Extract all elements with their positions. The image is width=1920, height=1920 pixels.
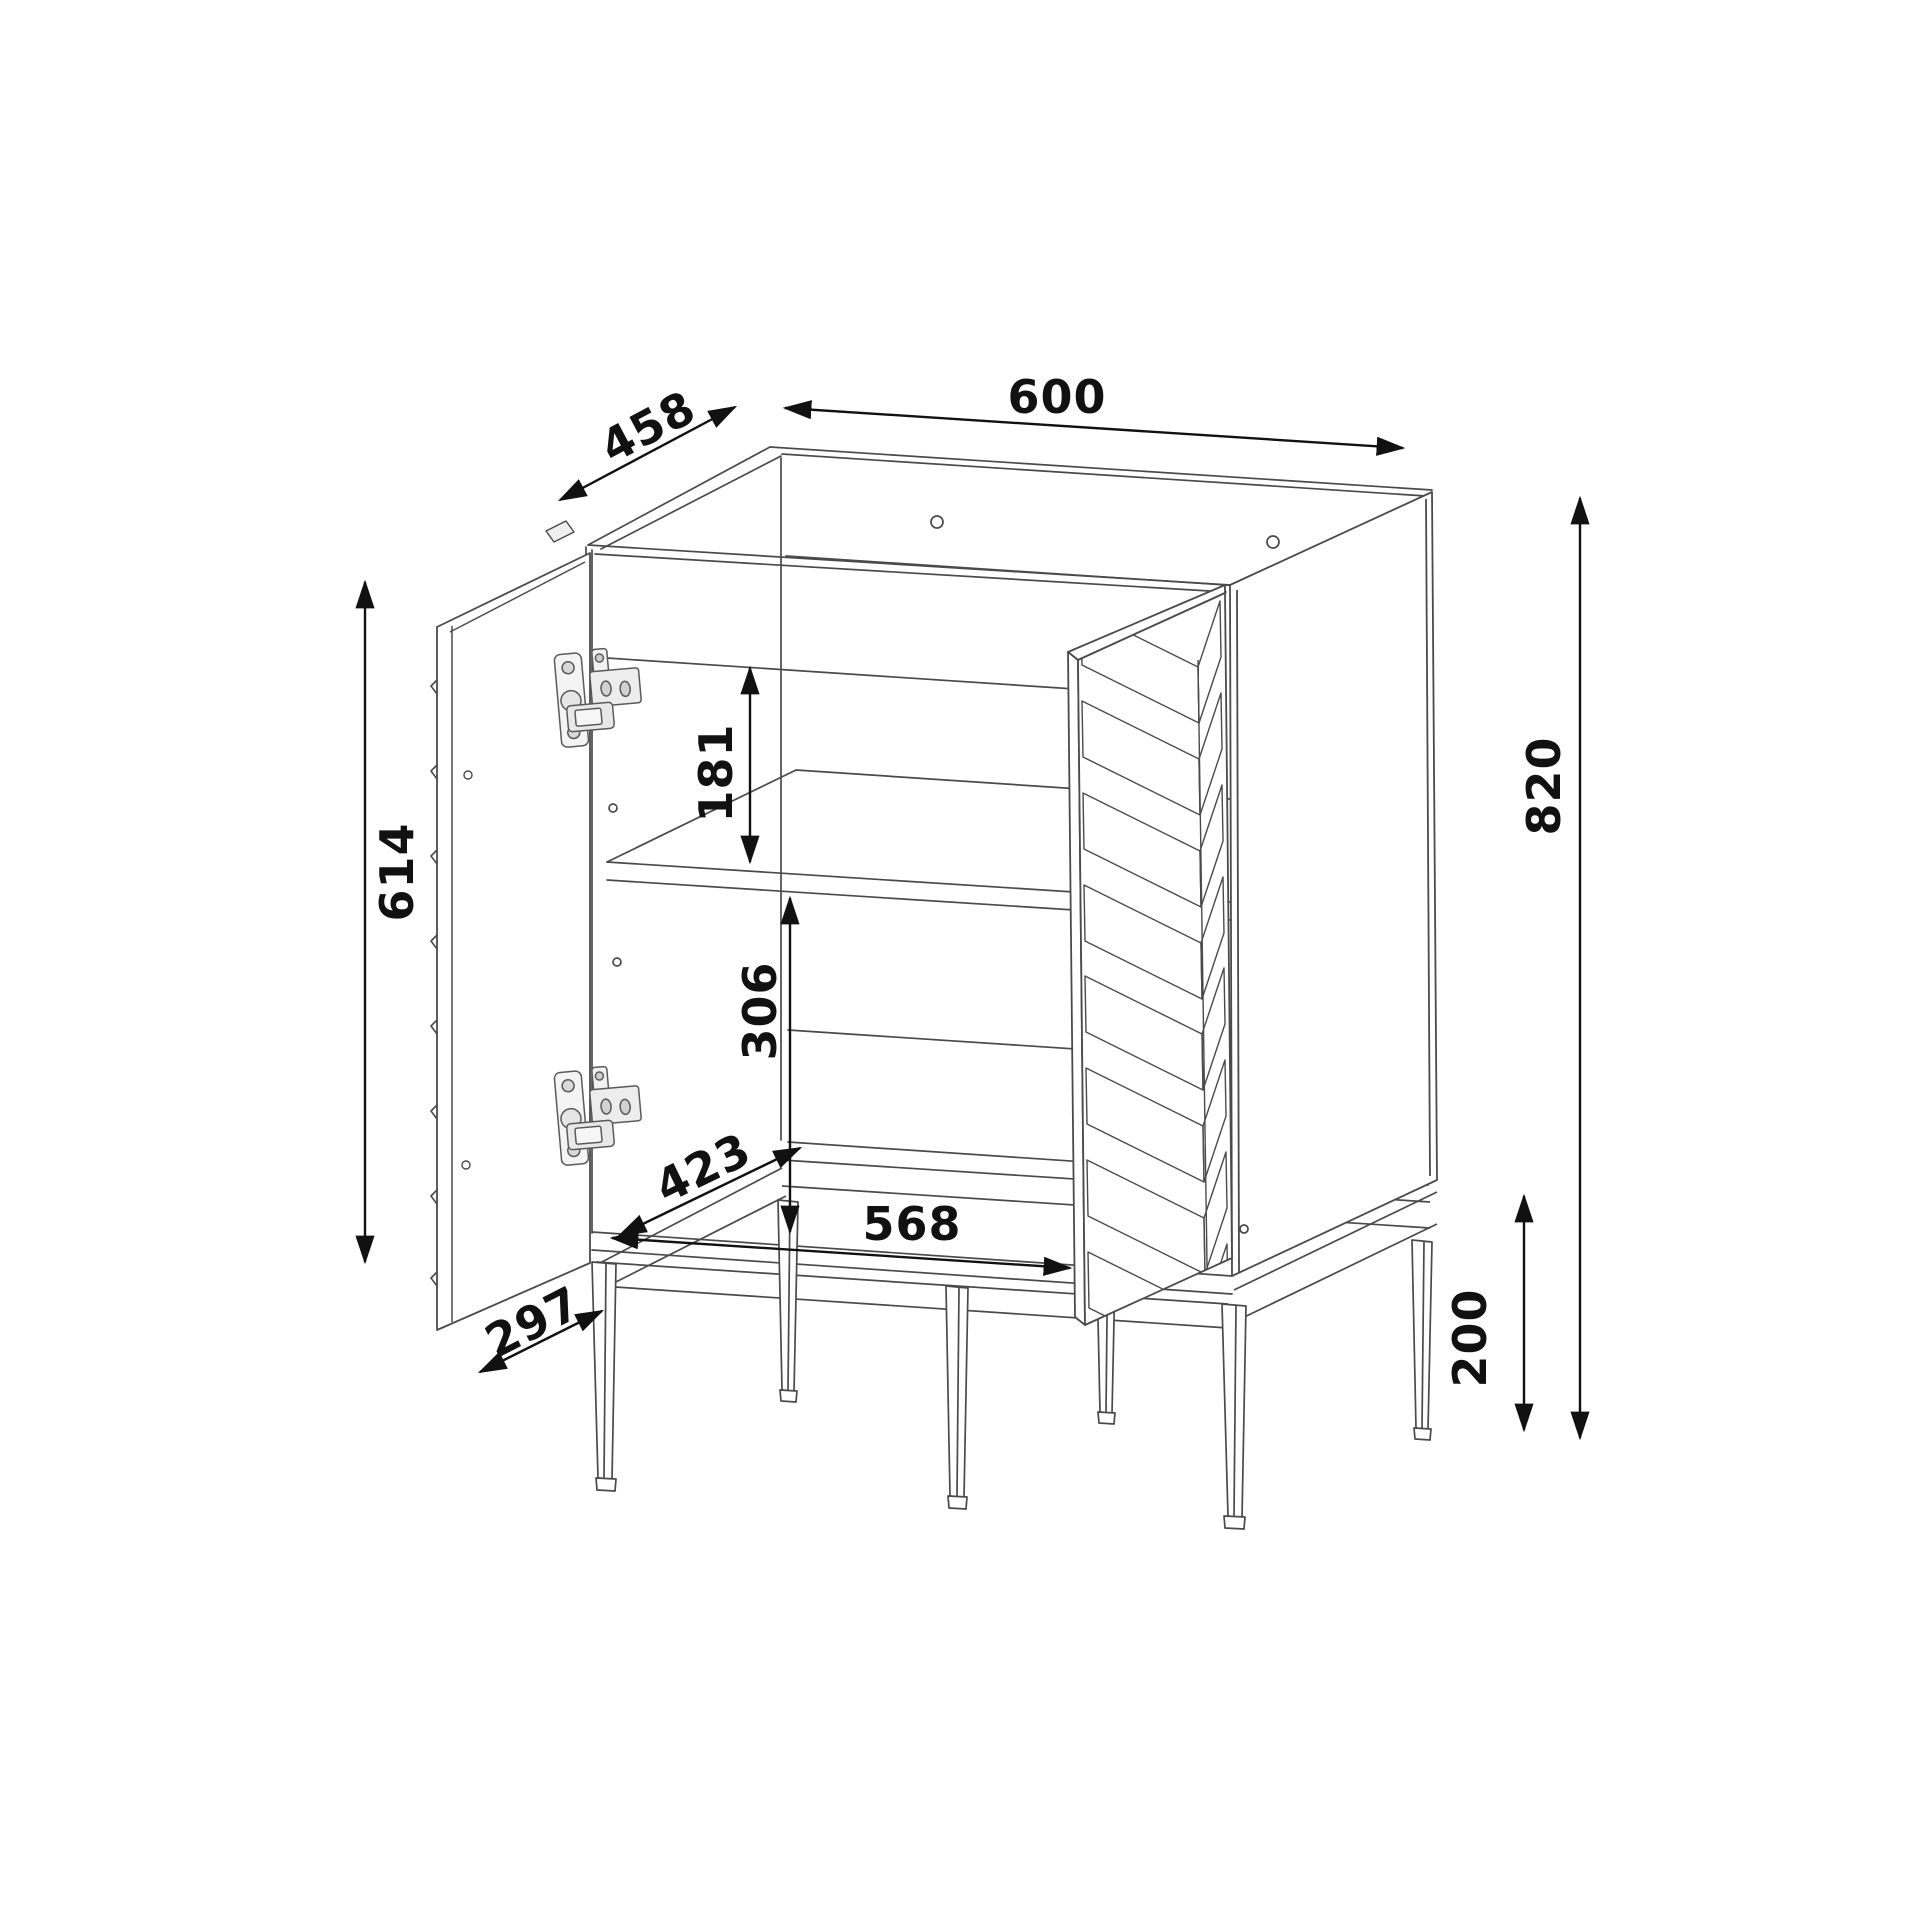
right-side-panel xyxy=(1230,492,1437,1276)
technical-drawing-page: 600 458 820 200 614 181 306 423 568 297 xyxy=(0,0,1920,1920)
hinge-slot xyxy=(600,681,611,697)
dim-leg-height-label: 200 xyxy=(1443,1288,1497,1387)
hinge-slot xyxy=(600,1099,611,1115)
hinge-slot xyxy=(620,681,631,697)
legs xyxy=(592,1200,1432,1529)
left-door-top-bracket xyxy=(546,521,574,542)
top-rim-left-inner xyxy=(601,456,781,549)
dim-height-label: 820 xyxy=(1517,736,1571,835)
leg-front-center-foot xyxy=(948,1496,967,1509)
dim-lower-opening-label: 306 xyxy=(733,961,787,1060)
hinge-arm-body xyxy=(590,1086,642,1125)
hinge-clamp-inner xyxy=(575,1126,602,1144)
hinge-lower xyxy=(554,1064,645,1166)
right-door-chevron xyxy=(1068,585,1232,1366)
hinge-arm-body xyxy=(590,668,642,707)
dim-upper-opening-label: 181 xyxy=(689,723,743,822)
leg-back-right-foot xyxy=(1414,1428,1431,1440)
dim-interior-width-label: 568 xyxy=(862,1197,961,1251)
hinge-screw xyxy=(562,661,575,674)
right-panel-face xyxy=(1230,492,1437,1276)
technical-drawing-canvas: 600 458 820 200 614 181 306 423 568 297 xyxy=(0,0,1920,1920)
hinge-screw xyxy=(595,654,604,663)
leg-front-right-foot xyxy=(1224,1516,1245,1529)
back-rail-hole-right xyxy=(1267,536,1279,548)
dim-interior-width-line xyxy=(612,1238,1070,1268)
left-door-open xyxy=(431,521,590,1330)
top-rim-back-inner xyxy=(782,454,1426,496)
dim-interior-depth-label: 423 xyxy=(647,1122,760,1214)
shelf-pin-hole-2 xyxy=(613,958,621,966)
back-rail-hole-left xyxy=(931,516,943,528)
hinge-screw xyxy=(562,1079,575,1092)
leg-back-left-foot xyxy=(780,1390,797,1402)
right-door-face xyxy=(1078,593,1232,1325)
hinge-clamp-inner xyxy=(575,708,602,726)
shelf-pin-hole-1 xyxy=(609,804,617,812)
leg-back-center-foot xyxy=(1098,1412,1115,1424)
dim-door-height-label: 614 xyxy=(370,822,424,921)
dim-depth-label: 458 xyxy=(592,380,705,474)
hinge-upper xyxy=(554,646,645,748)
top-rim-front-inner xyxy=(595,554,1226,592)
top-rim-back-outer xyxy=(770,447,1432,490)
hinge-screw xyxy=(595,1072,604,1081)
leg-front-left-foot xyxy=(596,1478,616,1491)
hinge-slot xyxy=(620,1099,631,1115)
dim-width-label: 600 xyxy=(1007,370,1106,424)
